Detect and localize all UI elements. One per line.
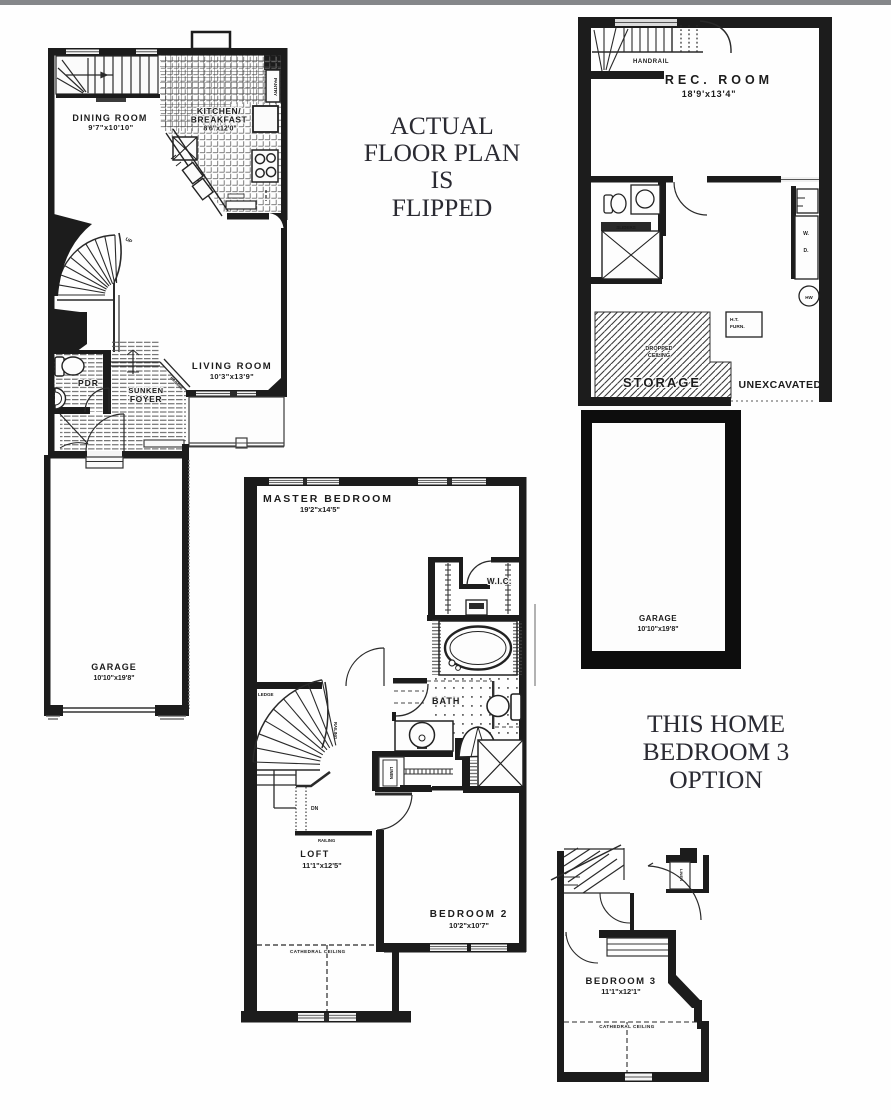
svg-text:PDR: PDR [78, 378, 99, 388]
svg-text:19'2"x14'5": 19'2"x14'5" [300, 505, 340, 514]
svg-text:CATHEDRAL CEILING: CATHEDRAL CEILING [290, 949, 346, 954]
svg-text:10'10"x19'8": 10'10"x19'8" [637, 626, 678, 633]
svg-text:11'1"x12'1": 11'1"x12'1" [601, 987, 641, 996]
svg-text:LIVING ROOM: LIVING ROOM [192, 361, 272, 372]
svg-text:RAILING: RAILING [333, 722, 338, 739]
svg-text:10'10"x19'8": 10'10"x19'8" [93, 675, 134, 682]
svg-text:10'3"x13'9": 10'3"x13'9" [210, 372, 254, 381]
svg-text:DINING ROOM: DINING ROOM [72, 113, 147, 123]
svg-text:PANTRY: PANTRY [273, 78, 278, 96]
svg-text:11'1"x12'5": 11'1"x12'5" [302, 861, 342, 870]
svg-text:ACTUAL: ACTUAL [390, 111, 493, 140]
svg-text:RAILING: RAILING [318, 838, 335, 843]
svg-text:HW: HW [805, 295, 813, 300]
svg-text:MASTER BEDROOM: MASTER BEDROOM [263, 493, 393, 505]
svg-text:STORAGE: STORAGE [623, 375, 701, 390]
svg-text:OPTION: OPTION [669, 765, 763, 794]
svg-text:IS: IS [431, 165, 454, 194]
svg-text:W.I.C.: W.I.C. [487, 577, 512, 586]
svg-text:SLIDERS: SLIDERS [616, 225, 636, 230]
svg-text:18'9'x13'4": 18'9'x13'4" [682, 89, 737, 99]
svg-text:HANDRAIL: HANDRAIL [633, 59, 669, 65]
svg-text:THIS HOME: THIS HOME [647, 709, 785, 738]
svg-text:9'7"x10'10": 9'7"x10'10" [88, 123, 133, 132]
svg-text:BEDROOM 3: BEDROOM 3 [643, 737, 790, 766]
svg-text:D.: D. [804, 248, 810, 254]
svg-text:W.: W. [803, 231, 809, 237]
svg-text:FLIPPED: FLIPPED [392, 193, 493, 222]
svg-text:BEDROOM 3: BEDROOM 3 [585, 976, 656, 987]
svg-text:UNEXCAVATED: UNEXCAVATED [738, 379, 821, 391]
svg-text:CEILING: CEILING [648, 353, 670, 359]
svg-text:10'2"x10'7": 10'2"x10'7" [449, 921, 489, 930]
svg-text:BREAKFAST: BREAKFAST [191, 115, 248, 125]
svg-text:BATH: BATH [432, 696, 460, 706]
svg-text:LINEN: LINEN [389, 767, 394, 780]
svg-text:H.T.: H.T. [730, 317, 739, 323]
svg-text:REC. ROOM: REC. ROOM [665, 73, 773, 87]
svg-text:DROPPED: DROPPED [645, 346, 672, 352]
svg-text:FURN.: FURN. [730, 324, 745, 330]
svg-text:LOFT: LOFT [300, 849, 330, 859]
svg-text:FOYER: FOYER [130, 394, 162, 404]
svg-text:GARAGE: GARAGE [639, 614, 677, 623]
svg-text:CATHEDRAL CEILING: CATHEDRAL CEILING [599, 1024, 655, 1029]
svg-text:LEDGE: LEDGE [258, 692, 274, 697]
svg-text:DN: DN [311, 806, 319, 812]
svg-text:GARAGE: GARAGE [91, 662, 137, 672]
svg-text:8'6"x12'0": 8'6"x12'0" [203, 126, 236, 133]
svg-text:FLOOR PLAN: FLOOR PLAN [364, 138, 521, 167]
svg-text:BEDROOM 2: BEDROOM 2 [430, 909, 509, 920]
